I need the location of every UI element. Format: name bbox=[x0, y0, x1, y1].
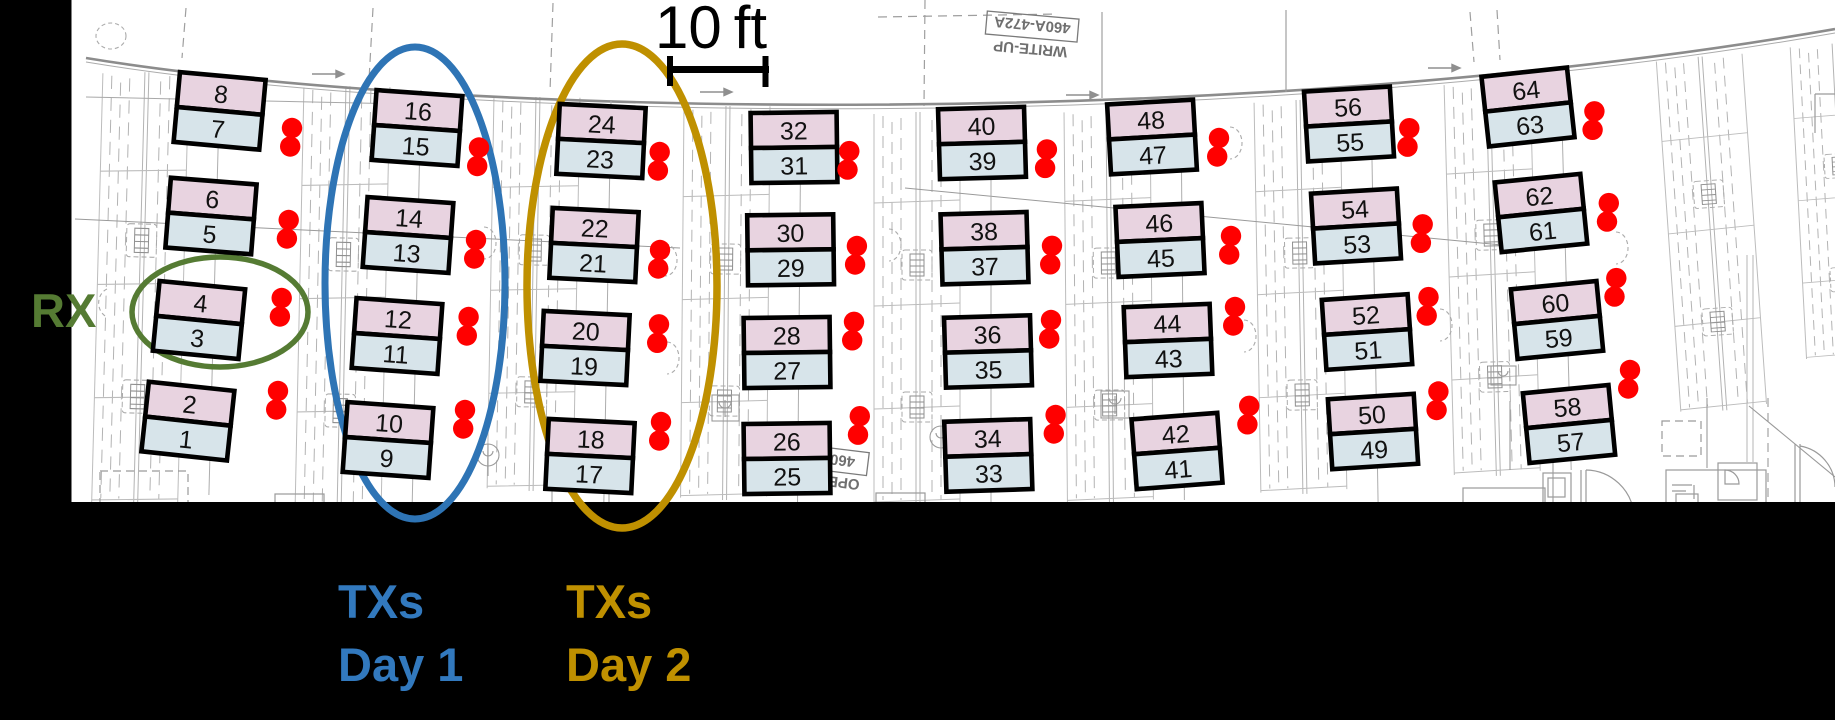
svg-text:2: 2 bbox=[181, 391, 198, 420]
svg-text:21: 21 bbox=[578, 249, 607, 278]
svg-text:18: 18 bbox=[576, 425, 605, 454]
svg-text:15: 15 bbox=[401, 132, 431, 162]
svg-text:10 ft: 10 ft bbox=[655, 0, 767, 61]
svg-text:42: 42 bbox=[1161, 420, 1191, 450]
svg-text:28: 28 bbox=[773, 322, 801, 350]
svg-text:8: 8 bbox=[213, 80, 229, 109]
svg-text:32: 32 bbox=[780, 117, 808, 145]
svg-text:TXs: TXs bbox=[338, 575, 424, 628]
svg-text:48: 48 bbox=[1136, 106, 1165, 136]
svg-text:26: 26 bbox=[773, 428, 801, 456]
svg-text:10: 10 bbox=[374, 409, 404, 439]
svg-text:23: 23 bbox=[585, 145, 614, 174]
svg-text:43: 43 bbox=[1154, 345, 1183, 374]
svg-text:1: 1 bbox=[177, 425, 194, 454]
svg-text:45: 45 bbox=[1146, 244, 1175, 273]
svg-text:36: 36 bbox=[973, 321, 1002, 350]
svg-text:61: 61 bbox=[1528, 217, 1558, 248]
svg-text:56: 56 bbox=[1333, 93, 1362, 123]
svg-text:40: 40 bbox=[967, 113, 996, 142]
svg-text:12: 12 bbox=[383, 305, 413, 335]
svg-text:29: 29 bbox=[777, 255, 805, 283]
svg-text:30: 30 bbox=[776, 220, 804, 248]
svg-text:17: 17 bbox=[574, 460, 603, 489]
svg-text:53: 53 bbox=[1342, 230, 1371, 260]
svg-text:60: 60 bbox=[1540, 289, 1570, 320]
svg-text:Day 1: Day 1 bbox=[338, 638, 463, 691]
svg-text:55: 55 bbox=[1335, 128, 1364, 158]
svg-text:52: 52 bbox=[1351, 301, 1381, 331]
svg-text:44: 44 bbox=[1153, 310, 1182, 339]
svg-text:TXs: TXs bbox=[566, 575, 652, 628]
svg-text:34: 34 bbox=[973, 425, 1002, 454]
svg-text:35: 35 bbox=[974, 356, 1003, 385]
svg-text:7: 7 bbox=[210, 115, 226, 144]
svg-text:24: 24 bbox=[587, 110, 616, 139]
svg-text:57: 57 bbox=[1556, 428, 1586, 459]
svg-text:59: 59 bbox=[1544, 324, 1574, 355]
svg-text:64: 64 bbox=[1511, 76, 1542, 107]
svg-text:16: 16 bbox=[403, 97, 433, 127]
svg-text:20: 20 bbox=[571, 317, 600, 346]
svg-text:3: 3 bbox=[189, 324, 206, 353]
svg-text:31: 31 bbox=[780, 152, 808, 180]
svg-text:46: 46 bbox=[1145, 209, 1174, 238]
svg-text:38: 38 bbox=[970, 218, 999, 247]
svg-text:49: 49 bbox=[1359, 436, 1389, 466]
svg-text:14: 14 bbox=[394, 204, 424, 234]
svg-text:54: 54 bbox=[1340, 195, 1370, 225]
svg-text:5: 5 bbox=[201, 220, 217, 249]
svg-text:9: 9 bbox=[379, 445, 395, 474]
svg-text:27: 27 bbox=[773, 357, 801, 385]
svg-text:33: 33 bbox=[975, 460, 1004, 489]
svg-text:25: 25 bbox=[773, 463, 801, 491]
svg-text:19: 19 bbox=[569, 352, 598, 381]
svg-text:13: 13 bbox=[392, 239, 422, 269]
svg-text:47: 47 bbox=[1138, 141, 1167, 171]
svg-text:6: 6 bbox=[204, 186, 220, 215]
svg-text:50: 50 bbox=[1357, 401, 1387, 431]
svg-text:11: 11 bbox=[382, 340, 410, 370]
svg-text:62: 62 bbox=[1524, 182, 1554, 213]
svg-text:Day 2: Day 2 bbox=[566, 638, 691, 691]
svg-text:RX: RX bbox=[31, 284, 96, 337]
svg-text:51: 51 bbox=[1353, 336, 1383, 366]
svg-text:41: 41 bbox=[1164, 455, 1194, 485]
svg-text:39: 39 bbox=[968, 148, 997, 177]
svg-text:58: 58 bbox=[1552, 393, 1582, 424]
svg-text:22: 22 bbox=[580, 214, 609, 243]
svg-text:37: 37 bbox=[971, 253, 1000, 282]
svg-text:4: 4 bbox=[192, 289, 209, 318]
svg-text:63: 63 bbox=[1515, 110, 1546, 141]
